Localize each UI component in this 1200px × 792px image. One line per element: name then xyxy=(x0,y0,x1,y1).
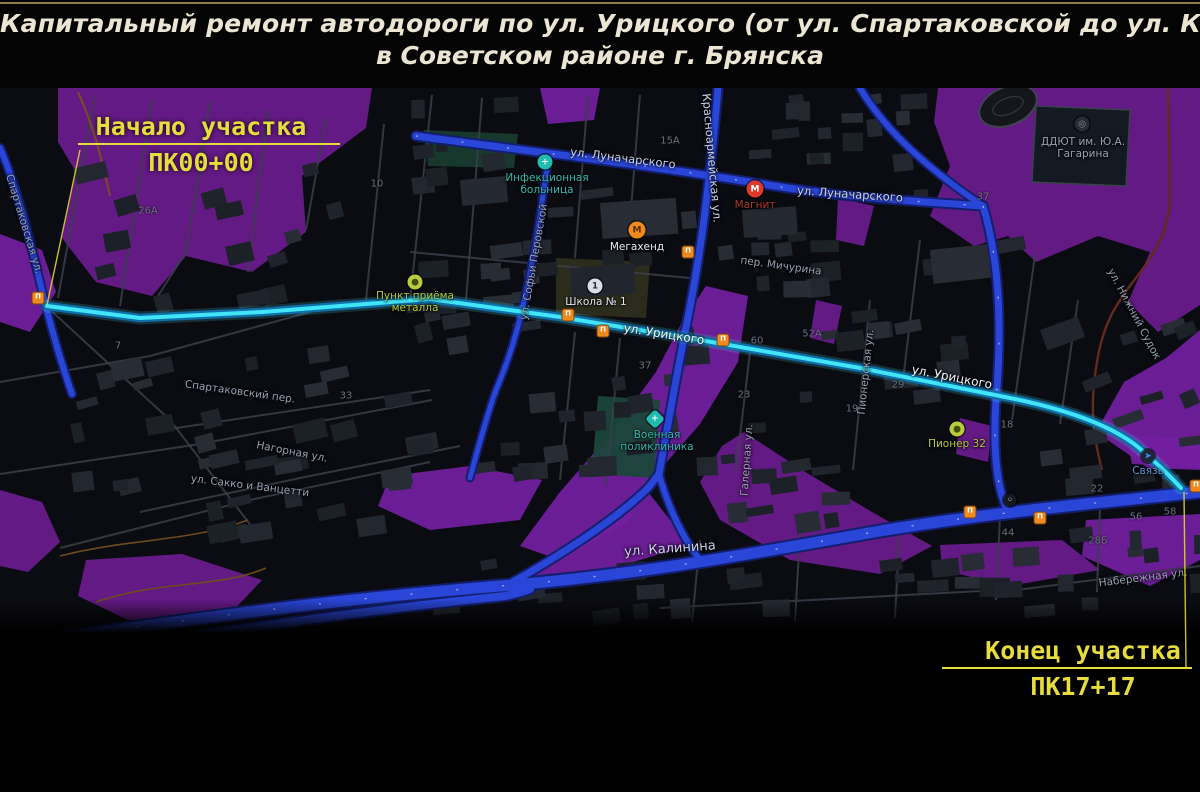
annotation-start-underline xyxy=(78,143,340,145)
page-title-line-2: в Советском районе г. Брянска xyxy=(0,38,1200,70)
annotation-end: Конец участка ПК17+17 xyxy=(942,636,1192,701)
annotation-end-underline xyxy=(942,667,1192,669)
ddyut-building xyxy=(1032,106,1130,186)
annotation-end-label: Конец участка xyxy=(942,636,1192,665)
annotation-start: Начало участка ПК00+00 xyxy=(78,112,340,177)
slide-header: Капитальный ремонт автодороги по ул. Ури… xyxy=(0,0,1200,88)
annotation-end-station: ПК17+17 xyxy=(942,672,1192,701)
slide: { "title": { "line1": "Капитальный ремон… xyxy=(0,0,1200,792)
title-rule xyxy=(0,2,1200,4)
annotation-start-station: ПК00+00 xyxy=(78,148,340,177)
page-title-line-1: Капитальный ремонт автодороги по ул. Ури… xyxy=(0,0,1200,38)
annotation-start-label: Начало участка xyxy=(78,112,340,141)
map-bottom-fade xyxy=(0,599,1200,633)
